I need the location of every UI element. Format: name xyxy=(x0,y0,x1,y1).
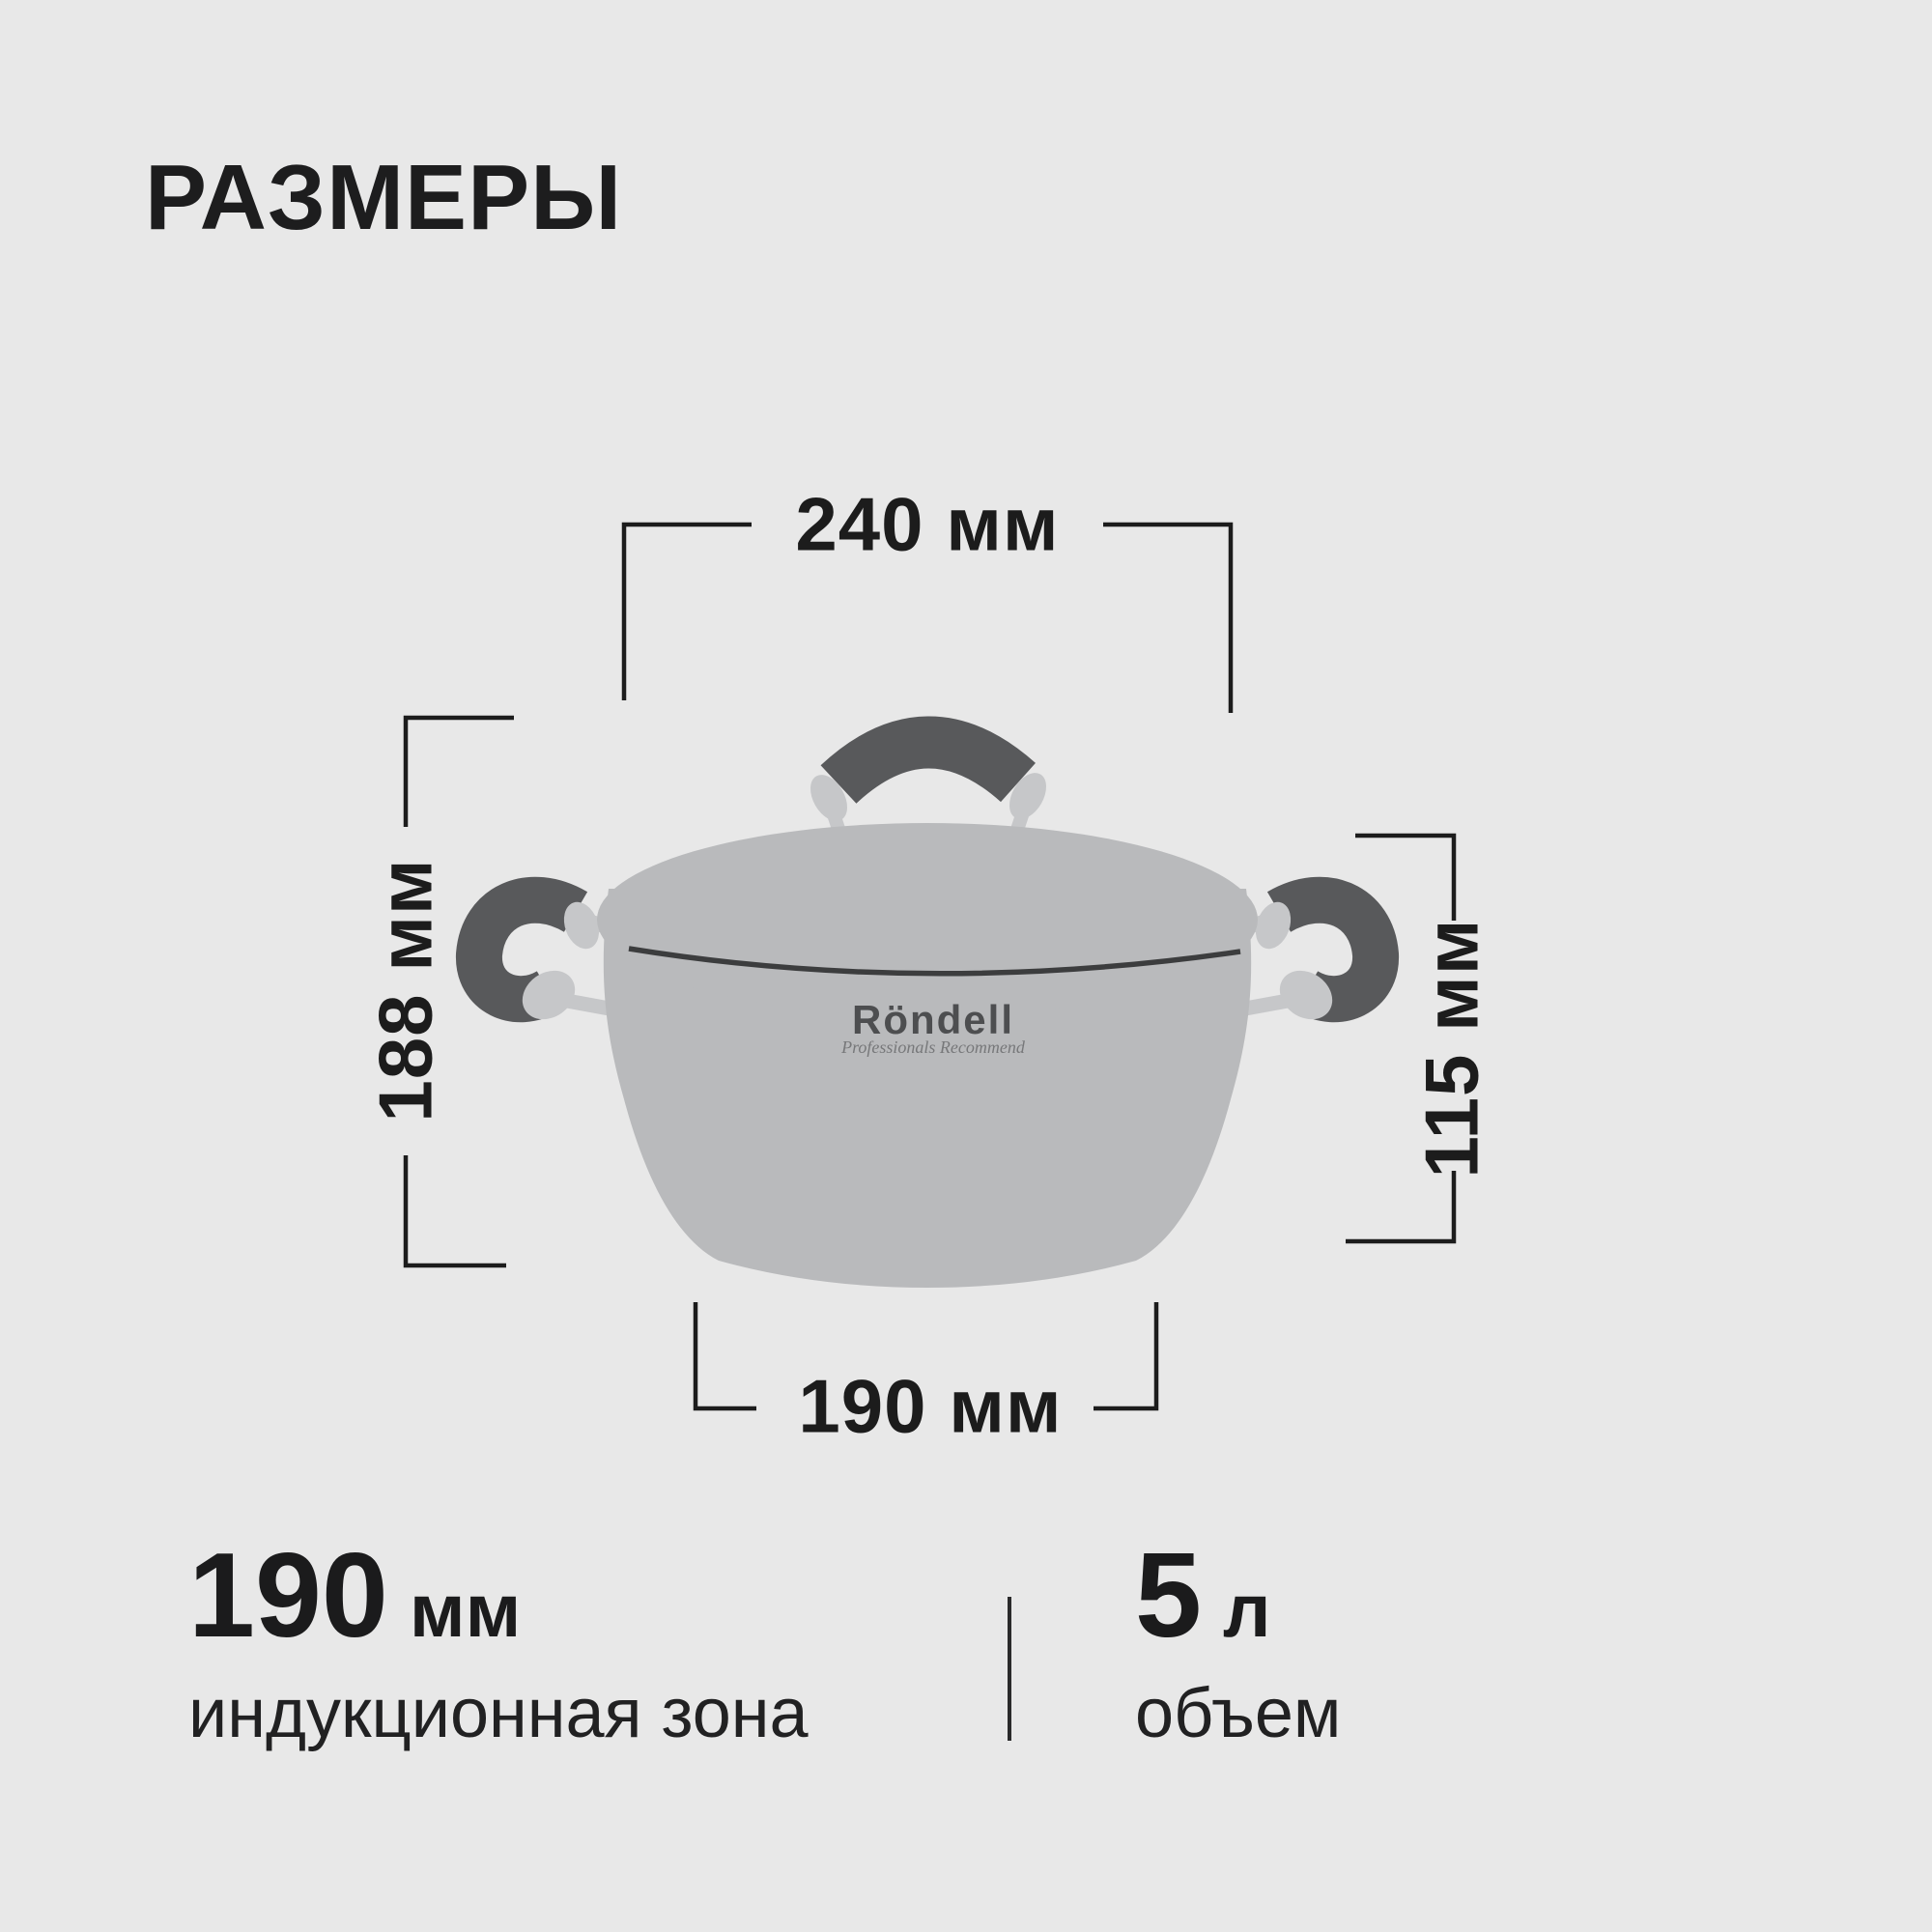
spec-induction-zone: 190 мм индукционная зона xyxy=(188,1544,809,1753)
brand-tagline: Professionals Recommend xyxy=(840,1037,1026,1057)
dimension-label-bottom-width: 190 мм xyxy=(798,1363,1062,1451)
bracket-bottom-left xyxy=(696,1302,756,1408)
dimension-label-left-height: 188 мм xyxy=(362,858,450,1122)
bracket-bottom-right xyxy=(1094,1302,1156,1408)
spec-induction-zone-label: индукционная зона xyxy=(188,1674,809,1753)
spec-volume-label: объем xyxy=(1135,1674,1341,1753)
spec-volume-value: 5 л xyxy=(1135,1544,1341,1649)
bracket-top-left xyxy=(624,525,752,700)
spec-induction-zone-value: 190 мм xyxy=(188,1544,809,1649)
spec-divider xyxy=(1008,1597,1011,1741)
spec-volume-number: 5 xyxy=(1135,1544,1202,1649)
dimensions-infographic: РАЗМЕРЫ xyxy=(0,0,1932,1932)
spec-volume: 5 л объем xyxy=(1135,1544,1341,1753)
dimension-label-top-width: 240 мм xyxy=(795,481,1059,569)
pot-lid xyxy=(597,823,1258,1016)
spec-induction-zone-number: 190 xyxy=(188,1544,388,1649)
bracket-left-lower xyxy=(406,1155,506,1265)
bracket-top-right xyxy=(1103,525,1231,713)
bracket-right-lower xyxy=(1346,1171,1454,1241)
bracket-left-upper xyxy=(406,718,514,827)
brand-logo: Röndell xyxy=(852,997,1014,1042)
spec-induction-zone-unit: мм xyxy=(410,1577,521,1644)
dimension-label-right-height: 115 мм xyxy=(1408,919,1496,1179)
pot-illustration: Röndell Professionals Recommend xyxy=(479,742,1376,1288)
spec-volume-unit: л xyxy=(1223,1577,1271,1644)
lid-handle-grip xyxy=(838,742,1018,784)
